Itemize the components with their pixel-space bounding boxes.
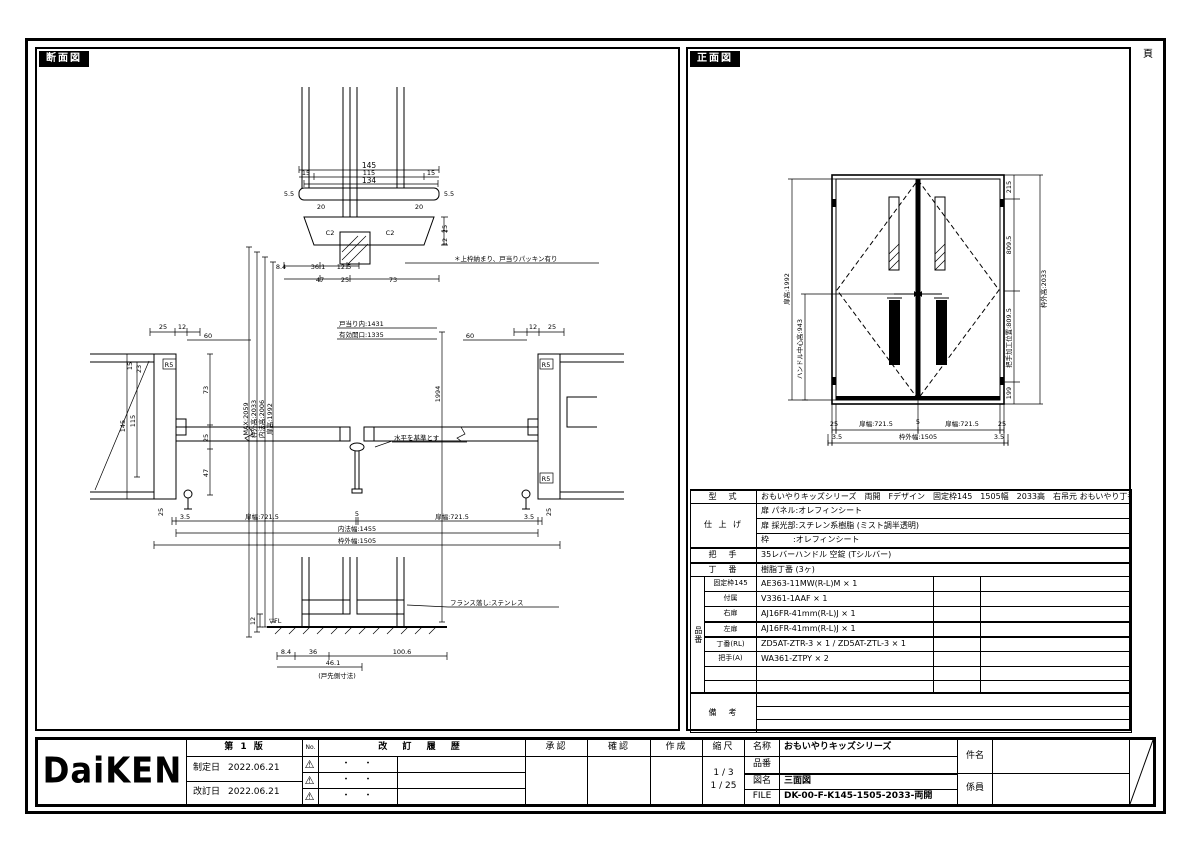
daiken-logo: DaiKEN [37,739,187,805]
revision-row-3: ⚠ [302,788,319,805]
radius-r5-right-bottom: R5 [542,475,551,483]
mid-top-dims: 25 12 60 60 12 25 戸当り内:1431 有効開口:1335 [150,319,564,340]
revision-date-1: ・ ・ [318,756,398,773]
approve-cell [525,756,588,805]
dim-12-top-right: 12 [529,323,537,331]
revised-label: 改訂日 [193,788,220,798]
revision-warning-icon: ⚠ [305,775,317,786]
revision-date-2: ・ ・ [318,772,398,789]
established-label: 制定日 [193,764,220,774]
part-row-blank [980,576,1132,592]
revision-date-3: ・ ・ [318,788,398,805]
front-view-panel: 正面図 [686,47,1131,731]
part-row-blank [933,636,981,652]
part-row-blank [980,606,1132,622]
dim-12-top-left: 12 [178,323,186,331]
partno-value [779,756,958,774]
revision-desc-2 [397,772,526,789]
dim-25-bottom-left: 25 [157,508,165,516]
part-row-blank [980,591,1132,607]
project-value [992,739,1130,774]
height-max-2059: MAX:2059 [242,402,250,435]
section-view-title: 断面図 [39,51,89,67]
revision-desc-1 [397,756,526,773]
title-block: DaiKEN 第 1 版 制定日 2022.06.21 改訂日 2022.06.… [35,737,1156,807]
dim-25-bottom-right: 25 [545,508,553,516]
chamfer-c2-left: C2 [326,229,335,237]
revision-desc-3 [397,788,526,805]
part-row-blank [933,651,981,667]
spec-model-label: 型 式 [690,489,757,504]
spec-remarks-row [756,719,1132,733]
dim-15-right: 15 [427,169,435,177]
page-corner-cell [1129,739,1154,805]
part-row-name-empty [704,666,757,681]
left-jamb: 145 115 15 23 R5 73 25 47 [90,354,213,509]
sill-dim-note: (戸先側寸法) [318,671,356,680]
file-value: DK-00-F-K145-1505-2033-両開 [779,789,958,805]
dim-25-top-left: 25 [159,323,167,331]
part-row-name: 付属 [704,591,757,607]
spec-handle-label: 把 手 [690,547,757,563]
dim-134: 134 [362,176,377,185]
spec-partno-label-text: 品番 [693,626,702,644]
dim-5-5-left: 5.5 [284,190,294,198]
dim-door-width-left: 扉幅:721.5 [245,512,279,521]
dim-46-1-sill: 46.1 [326,659,340,667]
mid-bottom-dims: 3.5 扉幅:721.5 5 扉幅:721.5 3.5 25 25 内法幅:14… [154,508,560,549]
part-row-code: ZD5AT-ZTR-3 × 1 / ZD5AT-ZTL-3 × 1 [756,636,934,652]
spec-handle-value: 35レバーハンドル 空錠 (Tシルバー) [756,547,1132,563]
spec-finish-frame: 枠 :オレフィンシート [756,533,1132,548]
dim-3-5-left: 3.5 [180,513,190,521]
page-number-label: 頁 [1136,45,1160,61]
part-row-code-empty [756,666,934,681]
section-top-walls [302,87,404,217]
revised-row: 改訂日 2022.06.21 [186,781,303,805]
head-frame-profile: 20 20 C2 C2 25 12 [299,188,449,264]
dim-25-head: 25 [441,225,449,233]
create-label: 作成 [650,739,703,757]
dim-73: 73 [389,276,397,284]
part-row-name: 丁番(RL) [704,636,757,652]
drawing-name-value: 三面図 [779,773,958,790]
dim-12-sill: 12 [249,617,257,625]
drawing-sheet: { "page": { "page_label": "頁" }, "brand"… [0,0,1191,842]
section-drawing: 145 15 115 15 134 5.5 5.5 20 20 C2 C2 25… [37,49,682,733]
dim-1431: 戸当り内:1431 [339,319,384,328]
dim-25-low: 25 [341,276,349,284]
part-row-code: AJ16FR-41mm(R-L)J × 1 [756,621,934,637]
part-row-blank [933,606,981,622]
spec-hinge-value: 樹脂丁番 (3ヶ) [756,562,1132,577]
scale-cell: 1 / 3 1 / 25 [702,756,745,805]
revision-warning-icon: ⚠ [305,791,317,802]
french-bolt-note: フランス落し:ステンレス [450,598,524,607]
jamb-dim-23: 23 [135,365,143,373]
section-top-lower-dims: 8.4 36.1 12.5 47 25 73 ＊上枠納まり、戸当りパッキン有り [276,254,599,284]
part-row-blank [933,576,981,592]
name-label: 名称 [744,739,780,757]
floor-level-label: ▽FL [269,617,282,625]
daiken-logo-text: DaiKEN [42,752,182,791]
radius-r5-left: R5 [165,361,174,369]
dim-8-4: 8.4 [276,263,286,271]
part-row-code: V3361-1AAF × 1 [756,591,934,607]
dim-5-5-right: 5.5 [444,190,454,198]
part-row-blank [980,621,1132,637]
staff-value [992,773,1130,805]
spec-remarks-row [756,692,1132,707]
part-row-blank [980,636,1132,652]
create-cell [650,756,703,805]
check-cell [587,756,651,805]
revision-no-label: No. [302,739,319,757]
dim-20-right: 20 [415,203,423,211]
part-row-blank [933,666,981,681]
approve-label: 承認 [525,739,588,757]
dim-1505: 枠外幅:1505 [338,536,376,545]
dim-8-4-sill: 8.4 [281,648,291,656]
spec-table: 型 式 おもいやりキッズシリーズ 両開 Fデザイン 固定枠145 1505幅 2… [688,49,1133,733]
height-2006: 内法高:2006 [257,400,266,438]
head-note: ＊上枠納まり、戸当りパッキン有り [454,254,558,263]
section-view-panel: 断面図 145 15 115 15 134 5.5 5.5 20 20 C2 C… [35,47,680,731]
drawing-name-label: 図名 [744,773,780,790]
staff-label: 係員 [957,773,993,805]
part-row-code: AJ16FR-41mm(R-L)J × 1 [756,606,934,622]
dim-5-center: 5 [355,510,359,518]
jamb-dim-73: 73 [202,386,210,394]
part-row-blank [933,591,981,607]
height-1992: 扉高:1992 [265,403,274,435]
spec-hinge-label: 丁 番 [690,562,757,577]
jamb-dim-15: 15 [126,362,134,370]
scale-value-2: 1 / 25 [711,782,737,792]
height-1994: 1994 [434,386,442,403]
part-row-code: AE363-11MW(R-L)M × 1 [756,576,934,592]
spec-finish-panel: 扉 パネル:オレフィンシート [756,503,1132,519]
dim-36-1: 36.1 [311,263,325,271]
dim-36-sill: 36 [309,648,317,656]
dim-1335: 有効開口:1335 [339,330,384,339]
part-row-blank [980,651,1132,667]
jamb-dim-145: 145 [119,420,127,432]
dim-3-5-right: 3.5 [524,513,534,521]
page-corner-diagonal [1130,740,1153,804]
check-label: 確認 [587,739,651,757]
jamb-dim-115: 115 [129,415,137,427]
part-row-code: WA361-ZTPY × 2 [756,651,934,667]
dim-60-left: 60 [204,332,212,340]
part-row-blank [933,621,981,637]
name-value: おもいやりキッズシリーズ [779,739,958,757]
dim-1455: 内法幅:1455 [338,524,376,533]
dim-20-left: 20 [317,203,325,211]
right-jamb: R5 R5 [522,354,624,509]
spec-partno-label: 品番 [690,576,705,693]
dim-door-width-right: 扉幅:721.5 [435,512,469,521]
part-row-name: 固定枠145 [704,576,757,592]
edition-label: 第 1 版 [186,739,303,757]
revision-row-2: ⚠ [302,772,319,789]
chamfer-c2-right: C2 [386,229,395,237]
spec-model-value: おもいやりキッズシリーズ 両開 Fデザイン 固定枠145 1505幅 2033高… [756,489,1132,504]
dim-25-top-right: 25 [548,323,556,331]
dim-47: 47 [316,276,324,284]
dim-12-head: 12 [441,238,449,246]
revision-row-1: ⚠ [302,756,319,773]
sill-detail: ▽FL フランス落し:ステンレス 12 8.4 36 100.6 46.1 (戸… [249,557,559,680]
dim-15-left: 15 [302,169,310,177]
revision-warning-icon: ⚠ [305,759,317,770]
part-row-blank [980,666,1132,681]
scale-value-1: 1 / 3 [713,769,733,779]
spec-finish-label: 仕 上 げ [690,503,757,548]
file-label: FILE [744,789,780,805]
dim-60-right: 60 [466,332,474,340]
spec-remarks-label: 備 考 [690,692,757,733]
part-row-name: 右扉 [704,606,757,622]
part-row-name: 把手(A) [704,651,757,667]
spec-finish-window: 扉 採光部:スチレン系樹脂 (ミスト調半透明) [756,518,1132,534]
radius-r5-right-top: R5 [542,361,551,369]
established-row: 制定日 2022.06.21 [186,756,303,782]
spec-remarks-row [756,706,1132,720]
revised-date: 2022.06.21 [228,788,280,798]
scale-label: 縮尺 [702,739,745,757]
established-date: 2022.06.21 [228,764,280,774]
jamb-dim-47: 47 [202,469,210,477]
door-leaf-plan: 水平を基準とす [176,427,538,493]
dim-12-5: 12.5 [337,263,351,271]
center-note: 水平を基準とす [394,433,440,442]
project-label: 件名 [957,739,993,774]
part-row-name: 左扉 [704,621,757,637]
dim-100-6-sill: 100.6 [393,648,412,656]
partno-label: 品番 [744,756,780,774]
revision-history-label: 改 訂 履 歴 [318,739,526,757]
height-2033: 枠外高:2033 [249,400,258,438]
